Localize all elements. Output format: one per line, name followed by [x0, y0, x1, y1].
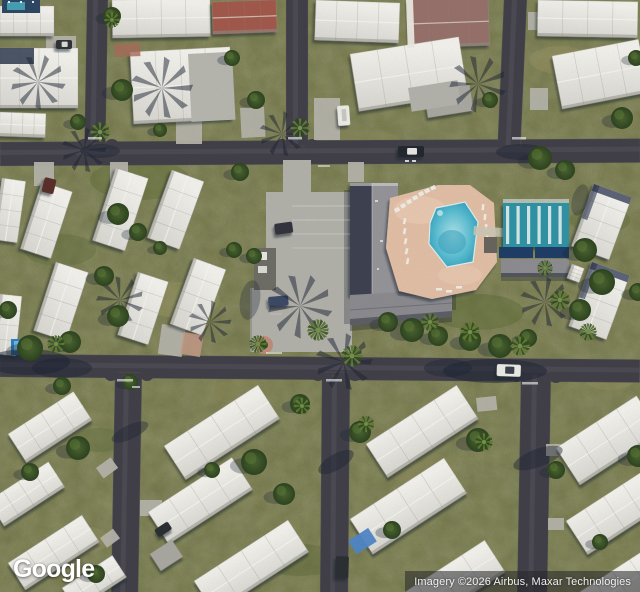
attribution-text: Imagery ©2026 Airbus, Maxar Technologies: [414, 576, 631, 588]
google-logo[interactable]: Google: [13, 555, 94, 584]
image-grain-overlay: [0, 0, 640, 592]
map-canvas[interactable]: Google Imagery ©2026 Airbus, Maxar Techn…: [0, 0, 640, 592]
imagery-attribution: Imagery ©2026 Airbus, Maxar Technologies: [405, 571, 640, 592]
satellite-imagery: [0, 0, 640, 592]
